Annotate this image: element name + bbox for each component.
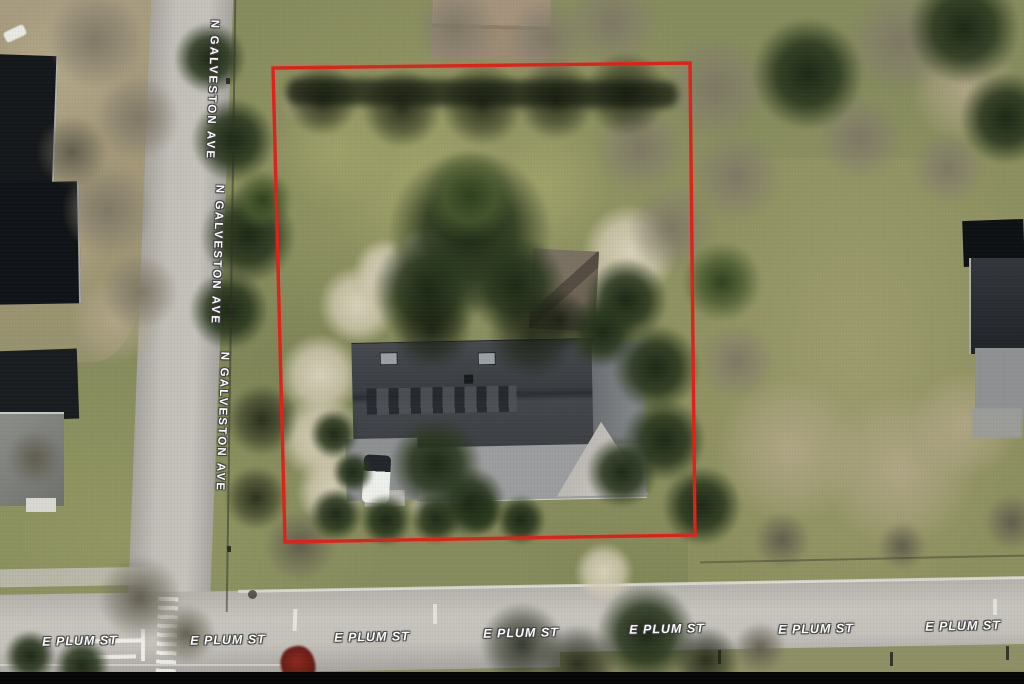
tree-shadow bbox=[362, 68, 442, 148]
palm-tree bbox=[332, 451, 374, 493]
tree-shadow bbox=[224, 466, 288, 530]
street-label-e-plum-st: E PLUM ST bbox=[629, 621, 705, 637]
neighbor-house-right-pad bbox=[972, 408, 1022, 438]
house-shadow bbox=[392, 290, 472, 370]
lane-dash bbox=[993, 599, 997, 615]
tree bbox=[662, 466, 742, 546]
utility-pole bbox=[229, 302, 233, 308]
bare-tree bbox=[690, 130, 782, 222]
tree bbox=[434, 466, 506, 538]
hedge bbox=[360, 494, 412, 546]
utility-pole bbox=[227, 546, 231, 552]
bare-tree bbox=[102, 254, 178, 330]
utility-pole bbox=[718, 650, 721, 664]
chimney bbox=[464, 375, 473, 384]
tree bbox=[233, 170, 293, 230]
scrub bbox=[878, 522, 926, 570]
tree-shadow bbox=[286, 64, 358, 136]
tree-shadow bbox=[226, 384, 298, 456]
bare-tree bbox=[36, 116, 108, 188]
central-tree bbox=[424, 150, 516, 242]
lane-dash bbox=[293, 609, 298, 631]
bare-tree bbox=[699, 324, 775, 400]
street-label-e-plum-st: E PLUM ST bbox=[483, 625, 559, 641]
street-label-e-plum-st: E PLUM ST bbox=[42, 633, 118, 649]
utility-pole bbox=[1006, 646, 1009, 660]
bare-tree bbox=[664, 36, 768, 140]
utility-pole bbox=[890, 652, 893, 666]
tree bbox=[682, 242, 762, 322]
roof-dormers bbox=[366, 386, 517, 415]
neighbor-house-right-roof bbox=[969, 258, 1024, 354]
aerial-map: N GALVESTON AVE N GALVESTON AVE N GALVES… bbox=[0, 0, 1024, 684]
tree-shadow bbox=[530, 290, 590, 350]
street-label-e-plum-st: E PLUM ST bbox=[925, 618, 1001, 634]
neighbor-house-left-porch bbox=[26, 498, 56, 512]
hedge bbox=[309, 487, 363, 541]
street-label-e-plum-st: E PLUM ST bbox=[778, 621, 854, 637]
shrub bbox=[7, 430, 63, 486]
bare-tree bbox=[96, 76, 180, 160]
tree-shadow bbox=[440, 62, 524, 146]
street-label-e-plum-st: E PLUM ST bbox=[190, 632, 266, 648]
utility-pole bbox=[226, 78, 230, 84]
letterbox-bar bbox=[0, 672, 1024, 684]
tree bbox=[752, 18, 864, 130]
skylight bbox=[380, 352, 398, 365]
neighbor-house-left-roof bbox=[0, 349, 79, 422]
tree bbox=[586, 436, 658, 508]
lane-dash bbox=[433, 604, 437, 624]
street-label-e-plum-st: E PLUM ST bbox=[334, 629, 410, 645]
manhole-cover bbox=[248, 590, 257, 599]
tree-shadow bbox=[584, 52, 668, 136]
